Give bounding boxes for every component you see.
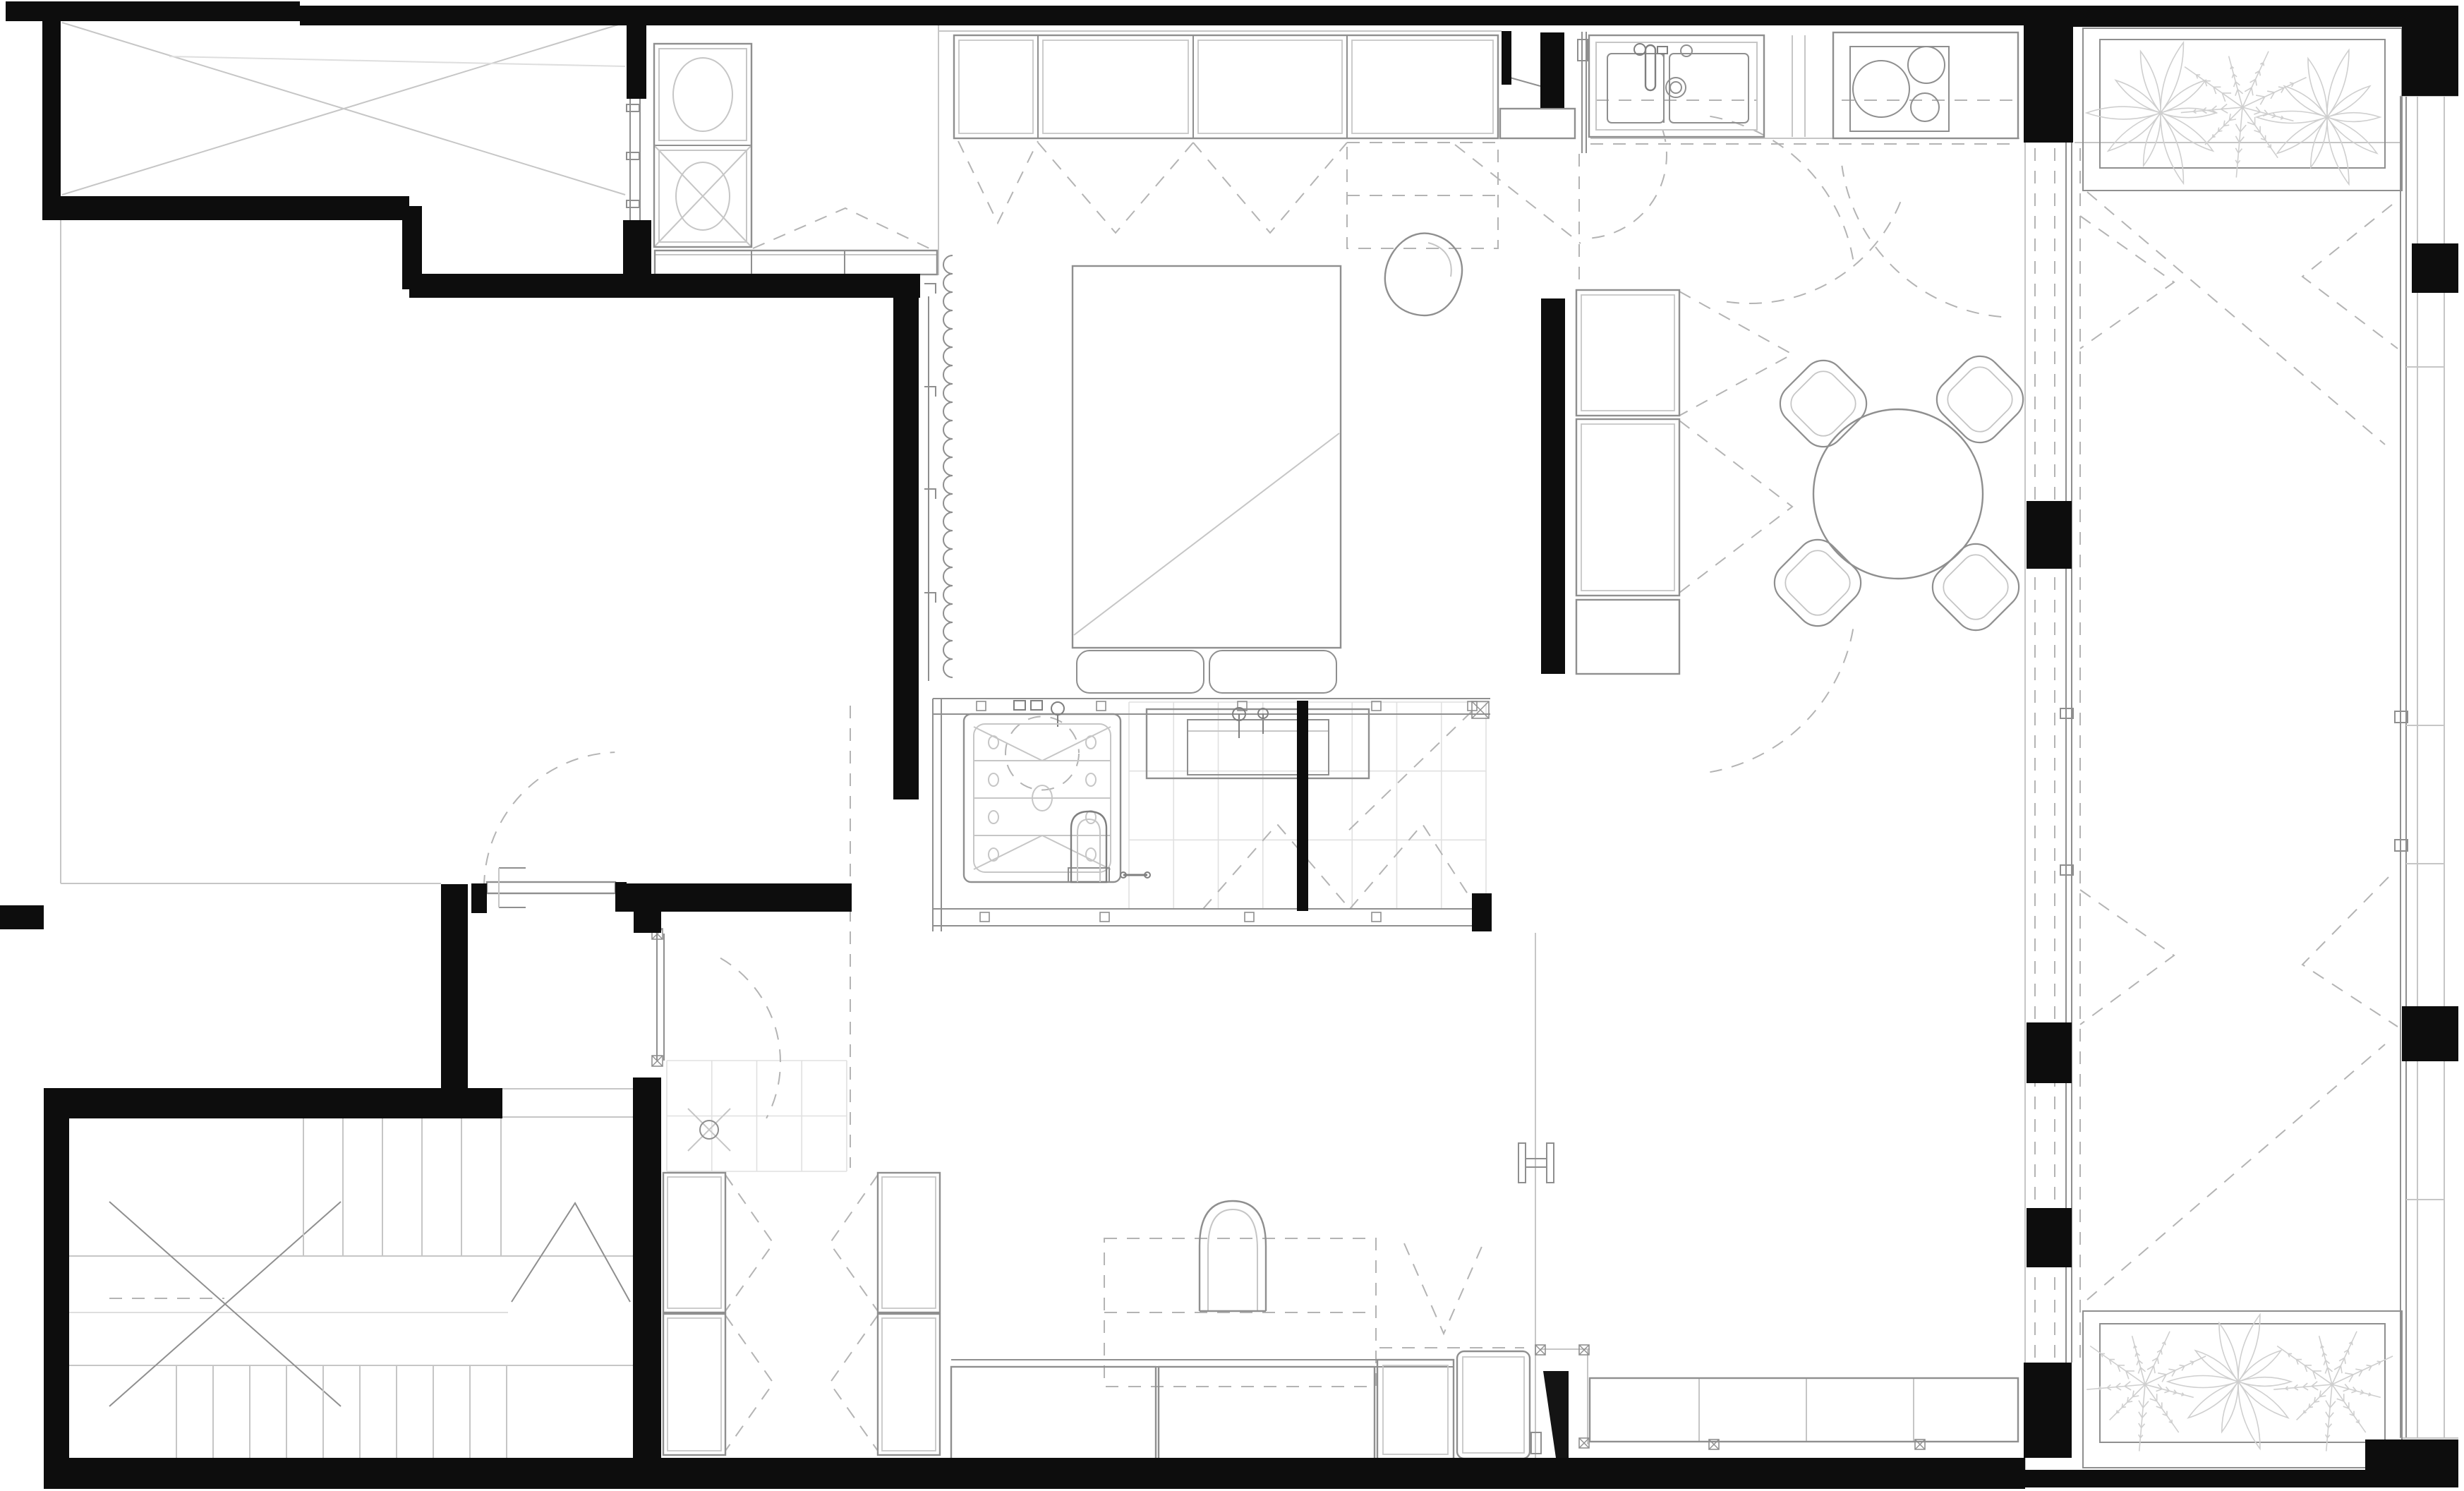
kitchen-column [1540, 32, 1564, 108]
entry-step-block [634, 908, 661, 933]
top-band-main [300, 6, 2025, 25]
balcony-left-pillar-3 [2027, 1022, 2072, 1083]
outer-left-wall-top [42, 20, 61, 207]
entry-left-stub [0, 905, 44, 929]
bath-corner-block [1472, 893, 1492, 931]
floor-plan-svg [0, 0, 2464, 1491]
balcony-mid-left-pillar [2027, 501, 2072, 569]
center-wall [1541, 298, 1565, 674]
xroom-bottom-wall [42, 196, 409, 220]
balcony-bl-pillar-lower [2024, 1363, 2072, 1458]
top-band-left [6, 1, 300, 21]
bottom-main-wall [44, 1458, 2025, 1489]
laundry-bottom-wall [409, 274, 920, 298]
right-facade-block-2 [2402, 1006, 2458, 1061]
top-band-right [2025, 6, 2458, 27]
bedroom-left-wall [893, 296, 919, 799]
stair-right-wall [633, 1077, 661, 1458]
xroom-right-wall-top [627, 20, 646, 99]
bath-right-wall [1297, 701, 1308, 911]
entry-jamb-left [471, 883, 487, 913]
duct [1502, 31, 1511, 85]
plan-background [0, 0, 2464, 1491]
entry-right-band [626, 883, 852, 912]
tr-corner-block [2402, 25, 2458, 96]
floor-plan [0, 0, 2464, 1491]
entry-jamb-right [615, 882, 627, 912]
stair-left-wall [44, 1118, 69, 1458]
stair-top-wall [44, 1088, 502, 1118]
right-facade-block-1 [2412, 243, 2458, 293]
balcony-top-left-pillar [2024, 25, 2073, 143]
entry-left-wall [441, 884, 468, 1089]
xroom-right-wall-bot [623, 220, 651, 274]
balcony-bl-pillar-upper [2027, 1208, 2072, 1267]
br-corner-block [2365, 1439, 2458, 1473]
